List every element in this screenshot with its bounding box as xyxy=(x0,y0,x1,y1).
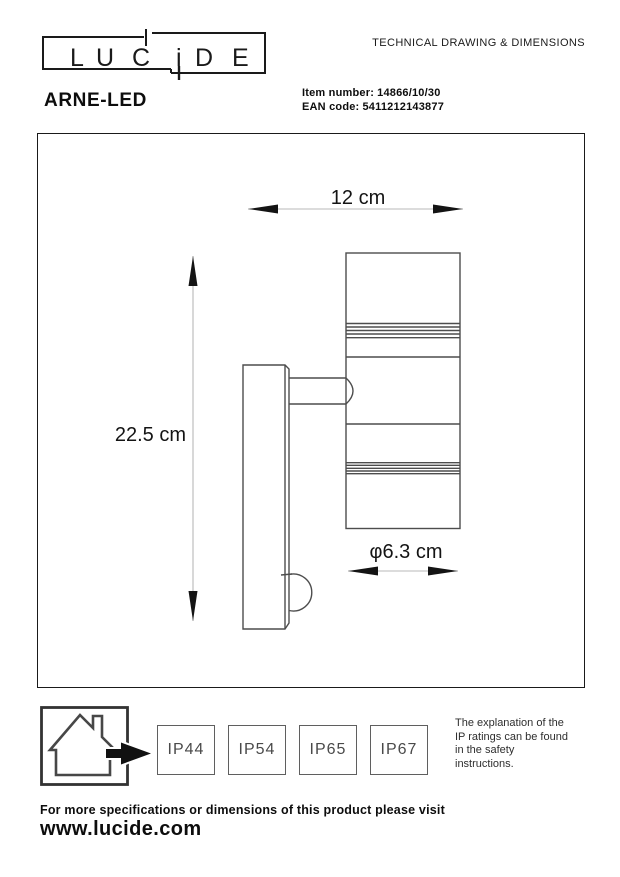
ean-value: 5411212143877 xyxy=(362,101,444,113)
more-info-text: For more specifications or dimensions of… xyxy=(40,803,445,817)
ip-rating-badge: IP54 xyxy=(228,725,286,775)
datasheet-page: { "header": { "logo": { "text": "LUCIDE"… xyxy=(0,0,620,877)
logo-letter: i xyxy=(176,44,182,72)
indoor-house-icon xyxy=(40,704,154,788)
mounting-arm xyxy=(289,378,353,404)
dim-diameter-label: φ6.3 cm xyxy=(370,541,443,563)
product-codes: Item number: 14866/10/30 EAN code: 54112… xyxy=(302,86,444,114)
dimension-height: 22.5 cm xyxy=(115,256,198,621)
dim-arrow-right-icon xyxy=(428,567,458,576)
dimension-width: 12 cm xyxy=(248,187,463,214)
dim-arrow-right-icon xyxy=(433,205,463,214)
technical-drawing-frame: 12 cm 22.5 cm xyxy=(37,133,585,688)
item-number-value: 14866/10/30 xyxy=(377,87,440,99)
ip-rating-badge: IP65 xyxy=(299,725,357,775)
dim-height-label: 22.5 cm xyxy=(115,424,186,446)
document-title: TECHNICAL DRAWING & DIMENSIONS xyxy=(280,37,585,49)
lamp-cylinder xyxy=(346,253,460,529)
dim-arrow-down-icon xyxy=(189,591,198,621)
logo-letter: L xyxy=(70,44,84,72)
lucide-logo: L U C i D E xyxy=(40,26,270,86)
ip-ratings-note: The explanation of the IP ratings can be… xyxy=(455,717,595,771)
item-number-row: Item number: 14866/10/30 xyxy=(302,86,444,100)
logo-letter: C xyxy=(132,44,150,72)
logo-letter: E xyxy=(232,44,249,72)
item-number-label: Item number: xyxy=(302,87,374,99)
dim-width-label: 12 cm xyxy=(331,187,385,209)
ean-row: EAN code: 5411212143877 xyxy=(302,100,444,114)
dim-arrow-left-icon xyxy=(348,567,378,576)
ip-rating-badge: IP67 xyxy=(370,725,428,775)
wall-plate xyxy=(243,365,289,629)
product-name: ARNE-LED xyxy=(44,90,147,112)
dim-arrow-up-icon xyxy=(189,256,198,286)
ip-rating-badge: IP44 xyxy=(157,725,215,775)
dim-arrow-left-icon xyxy=(248,205,278,214)
ean-label: EAN code: xyxy=(302,101,359,113)
website-url: www.lucide.com xyxy=(40,818,202,841)
dimension-diameter: φ6.3 cm xyxy=(348,541,458,576)
technical-drawing: 12 cm 22.5 cm xyxy=(38,134,584,687)
logo-letter: U xyxy=(96,44,114,72)
logo-letter: D xyxy=(195,44,213,72)
